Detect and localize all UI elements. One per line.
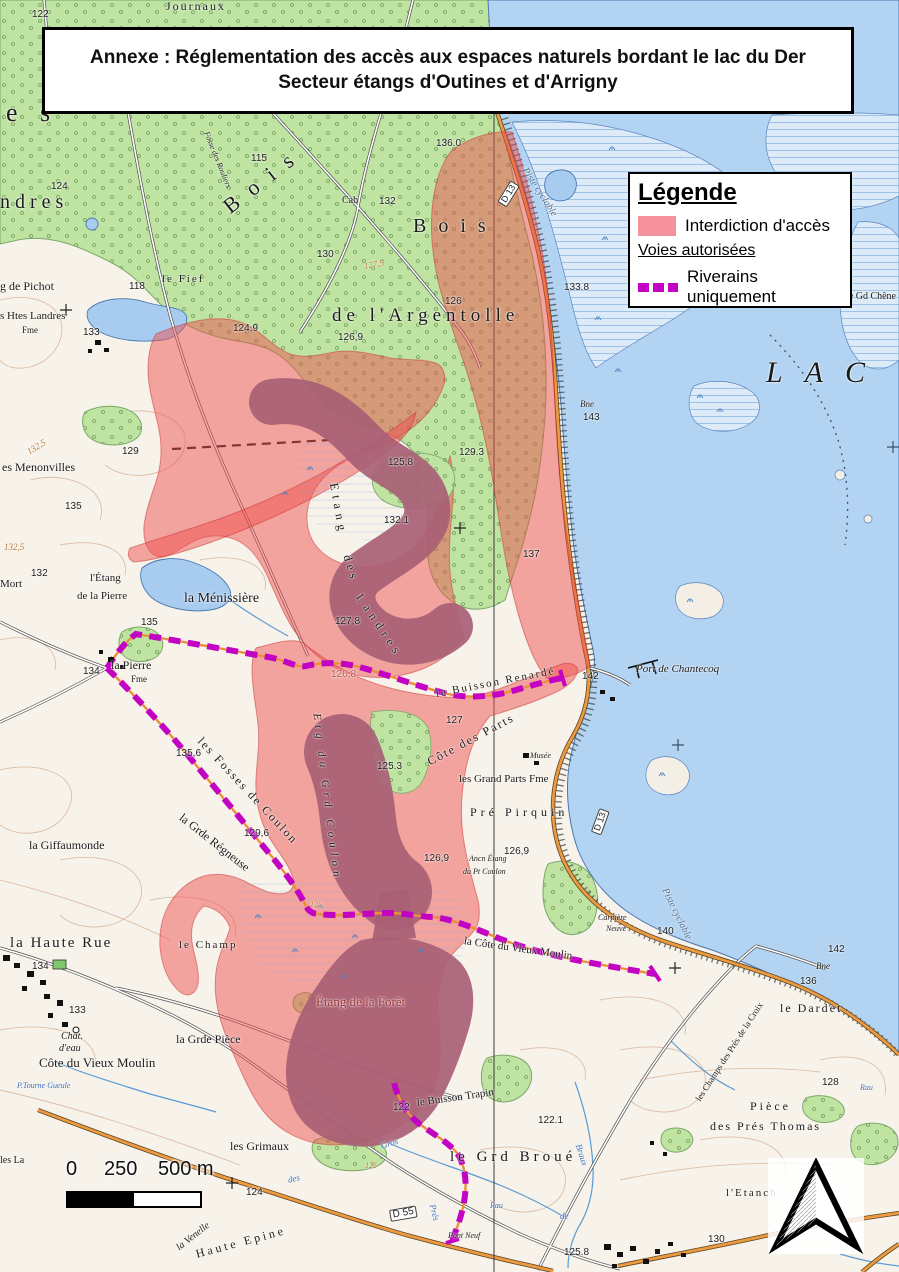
legend-item-label: Riverains uniquement [687,267,842,307]
scale-bar-filled-half [68,1193,134,1206]
legend: Légende Interdiction d'accès Voies autor… [628,172,852,308]
legend-subheading: Voies autorisées [638,242,842,260]
legend-item-label: Interdiction d'accès [685,216,830,236]
scale-label-500: 500 m [158,1158,214,1181]
scale-label-0: 0 [66,1158,77,1181]
map-page: Journaux122e sndres124Fosse des Rouliers… [0,0,899,1272]
residents-route-swatch [638,283,678,292]
north-arrow-icon [768,1158,864,1254]
scale-label-250: 250 [104,1158,137,1181]
scale-bar: 0 250 500 m [28,1158,238,1218]
sports-field [53,960,66,969]
title-line1: Annexe : Réglementation des accès aux es… [90,47,806,69]
title-box: Annexe : Réglementation des accès aux es… [42,27,854,114]
legend-item-restricted: Interdiction d'accès [638,216,842,236]
legend-title: Légende [638,179,842,207]
title-line2: Secteur étangs d'Outines et d'Arrigny [278,72,618,94]
restricted-area-swatch [638,216,676,236]
north-arrow [768,1158,864,1254]
water-tower [73,1027,79,1033]
scale-bar-rule [66,1191,202,1208]
legend-item-residents: Riverains uniquement [638,267,842,307]
